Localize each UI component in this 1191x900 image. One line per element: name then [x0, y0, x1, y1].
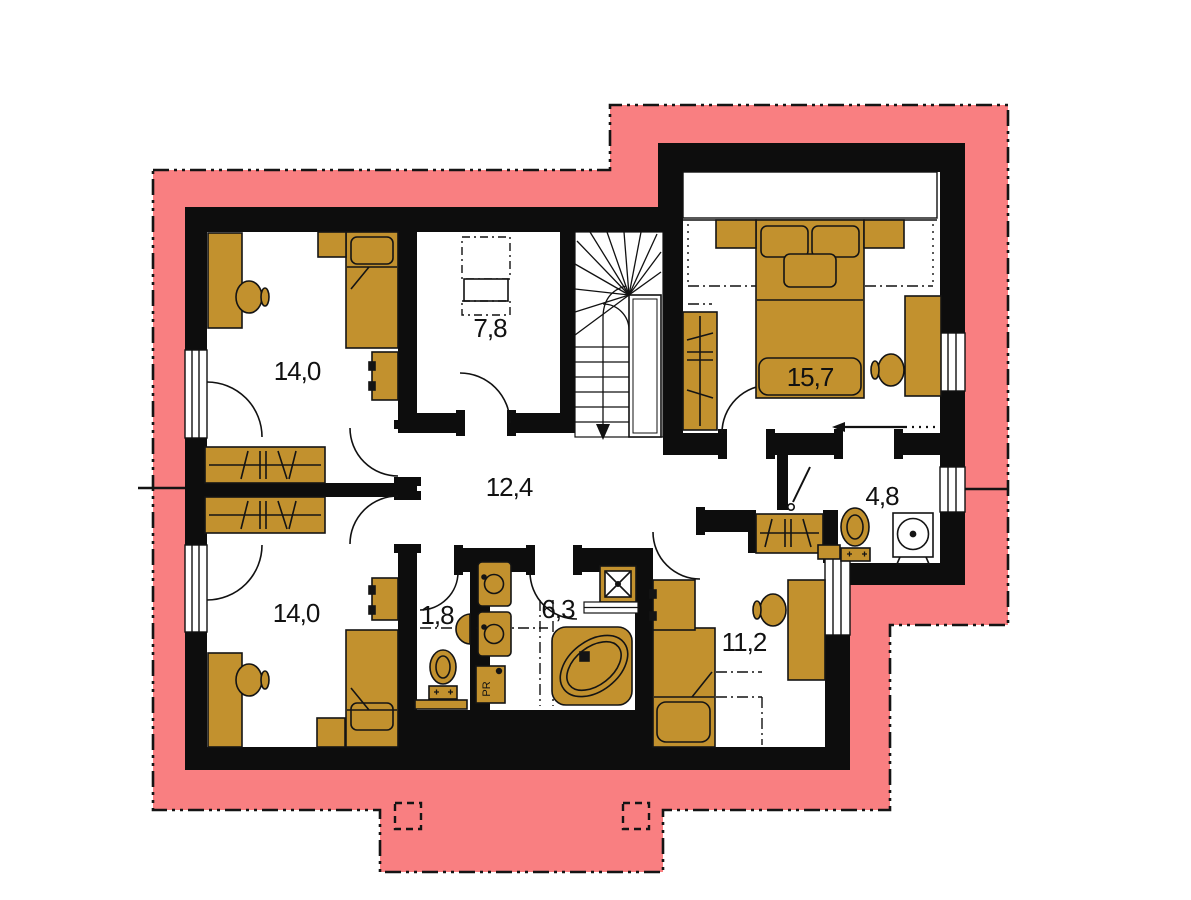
- shower-icon: [600, 566, 636, 602]
- jamb: [454, 545, 463, 575]
- area-label-room-78: 7,8: [473, 313, 507, 343]
- headboard-cabinet-icon: [716, 220, 756, 248]
- bedside-cabinet-icon: [369, 352, 398, 400]
- jamb: [394, 477, 421, 486]
- jamb: [573, 545, 582, 575]
- jamb: [696, 507, 705, 535]
- sink-cabinet-icon: [478, 562, 511, 606]
- wall-bathroom-bedroom: [635, 548, 653, 747]
- bathtub-icon: [549, 623, 640, 709]
- jamb: [894, 429, 903, 459]
- wall-78-bottom-b: [512, 413, 560, 433]
- gap-door-wc: [417, 548, 458, 572]
- gap-door-7-8: [460, 413, 512, 433]
- jamb: [507, 410, 516, 436]
- shelf-icon: [415, 700, 467, 709]
- wall-bedroom-ur-bottom-b: [770, 433, 838, 455]
- washing-machine-icon: [893, 513, 933, 564]
- sink-cabinet-icon: [478, 612, 511, 656]
- area-label-bedroom-ll: 14,0: [273, 598, 320, 628]
- wall-stairs-bedroom: [663, 168, 683, 455]
- floor-hall-understair: [575, 437, 663, 548]
- desk-icon: [208, 653, 242, 747]
- jamb: [526, 545, 535, 575]
- jamb: [766, 429, 775, 459]
- bedside-cabinet-icon: [650, 580, 695, 630]
- wall-wardrobe-stub-left: [748, 510, 756, 553]
- dormer-niche: [683, 172, 937, 220]
- wall-bedroom-ur-bottom-a: [663, 433, 722, 455]
- window-bedroom-ur: [940, 333, 965, 391]
- bed-icon: [653, 628, 715, 747]
- wardrobe-icon: [205, 447, 325, 483]
- jamb: [394, 420, 421, 429]
- bedside-cabinet-icon: [369, 578, 398, 620]
- wall-niche-stub-bottom: [777, 498, 788, 510]
- bed-icon: [346, 232, 398, 348]
- floor-plan-canvas: 14,0 7,8 15,7 12,4 14,0 1,8 6,3 4,8 11,2…: [0, 0, 1191, 900]
- washer-label: PR: [481, 681, 493, 696]
- wall-rooms-hall-a: [398, 232, 417, 429]
- area-label-bedroom-lr: 11,2: [722, 627, 767, 657]
- floor-plan-page: 14,0 7,8 15,7 12,4 14,0 1,8 6,3 4,8 11,2…: [0, 0, 1191, 900]
- wardrobe-icon: [205, 497, 325, 533]
- jamb: [394, 491, 421, 500]
- jamb: [718, 429, 727, 459]
- gap-door-bedroom-lr: [653, 510, 700, 532]
- area-label-hall: 12,4: [486, 472, 533, 502]
- jamb: [394, 544, 421, 553]
- gap-door-bedroom-ur: [722, 433, 770, 455]
- wall-bedrooms-divider: [205, 483, 398, 497]
- area-label-bedroom-ul: 14,0: [274, 356, 321, 386]
- wardrobe-icon: [756, 514, 823, 553]
- window-bedroom-lr: [825, 555, 850, 635]
- area-label-shower-room: 4,8: [865, 481, 899, 511]
- desk-icon: [788, 580, 825, 680]
- bed-icon: [346, 630, 398, 747]
- gap-door-bedroom-ul: [398, 429, 417, 477]
- stair-well: [629, 295, 661, 437]
- area-label-wc: 1,8: [420, 600, 454, 630]
- jamb: [834, 429, 843, 459]
- wall-78-stairs: [560, 232, 575, 433]
- area-label-bathroom: 6,3: [541, 594, 575, 624]
- wall-bedroom-ur-bottom-c: [898, 433, 940, 455]
- gap-door-bedroom-ll: [398, 500, 417, 544]
- wardrobe-icon: [683, 312, 717, 430]
- headboard-cabinet-icon: [318, 232, 346, 257]
- side-cabinet-icon: [818, 545, 840, 559]
- wall-niche-stub-top: [777, 455, 788, 467]
- area-label-bedroom-ur: 15,7: [787, 362, 834, 392]
- window-bedroom-ll: [185, 545, 207, 632]
- toilet-icon: [429, 650, 457, 699]
- desk-icon: [208, 233, 242, 328]
- headboard-cabinet-icon: [317, 718, 345, 747]
- toilet-icon: [841, 508, 870, 561]
- window-bedroom-ul: [185, 350, 207, 438]
- gap-door-bathroom: [530, 548, 577, 572]
- desk-icon: [905, 296, 941, 396]
- headboard-cabinet-icon: [864, 220, 904, 248]
- wall-rooms-hall-c: [398, 544, 417, 770]
- gap-sliding-door: [838, 433, 898, 455]
- radiator-icon: [584, 602, 638, 613]
- floor-corridor: [663, 455, 777, 510]
- window-shower-room: [940, 467, 965, 512]
- jamb: [456, 410, 465, 436]
- wall-bedroom-lr-top: [700, 510, 748, 532]
